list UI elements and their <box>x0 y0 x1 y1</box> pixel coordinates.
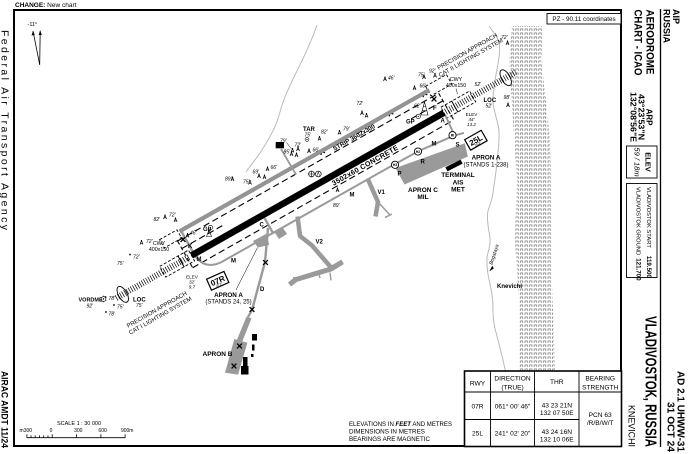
svg-text:400x150: 400x150 <box>446 83 466 89</box>
svg-text:75': 75' <box>243 180 251 186</box>
svg-text:900m: 900m <box>121 428 134 434</box>
svg-text:85': 85' <box>284 150 292 156</box>
svg-text:66': 66' <box>313 148 321 154</box>
svg-text:66': 66' <box>420 84 428 90</box>
svg-text:APRON C: APRON C <box>408 187 438 194</box>
svg-text:AIP: AIP <box>671 9 681 24</box>
svg-text:79': 79' <box>343 127 351 133</box>
svg-text:DIRECTION: DIRECTION <box>494 376 531 383</box>
svg-text:75': 75' <box>305 133 313 139</box>
svg-text:GP: GP <box>406 120 415 126</box>
svg-text:75': 75' <box>418 73 426 79</box>
svg-text:BEARINGS ARE MAGNETIC: BEARINGS ARE MAGNETIC <box>349 436 430 443</box>
svg-text:PCN 63: PCN 63 <box>589 412 612 419</box>
svg-text:APRON A: APRON A <box>214 292 243 299</box>
svg-text:M: M <box>197 257 202 263</box>
svg-text:52': 52' <box>475 82 483 88</box>
svg-text:D: D <box>260 287 265 293</box>
svg-text:62': 62' <box>414 104 422 110</box>
svg-text:DIMENSIONS IN METRES: DIMENSIONS IN METRES <box>349 428 425 435</box>
svg-text:75': 75' <box>117 305 125 311</box>
svg-text:241° 02' 20": 241° 02' 20" <box>495 430 531 438</box>
svg-text:SCALE 1 : 30 000: SCALE 1 : 30 000 <box>57 421 101 427</box>
svg-text:APRON B: APRON B <box>203 351 233 358</box>
svg-text:V2: V2 <box>316 240 324 246</box>
svg-text:0: 0 <box>50 428 53 434</box>
svg-text:59 / 18m: 59 / 18m <box>633 147 642 176</box>
svg-text:46': 46' <box>388 76 396 82</box>
svg-text:V1: V1 <box>378 190 386 196</box>
svg-text:98': 98' <box>504 95 512 101</box>
svg-text:72': 72' <box>169 213 177 219</box>
svg-text:CHART - ICAO: CHART - ICAO <box>632 10 644 76</box>
svg-text:Gp: Gp <box>203 227 212 233</box>
svg-text:ELEV: ELEV <box>644 152 653 172</box>
svg-text:ELEVATIONS IN FEET AND METRES: ELEVATIONS IN FEET AND METRES <box>349 421 452 428</box>
svg-text:C: C <box>260 223 265 229</box>
svg-text:KNEVICHI: KNEVICHI <box>626 405 637 447</box>
svg-text:CAT II LIGHTING SYSTEM: CAT II LIGHTING SYSTEM <box>438 38 504 79</box>
svg-text:-11°: -11° <box>28 22 38 28</box>
svg-text:(STANDS 1-238): (STANDS 1-238) <box>464 163 509 169</box>
svg-text:H3: H3 <box>393 163 398 167</box>
svg-text:300: 300 <box>74 428 83 434</box>
svg-text:Federal Air Transport Agency: Federal Air Transport Agency <box>0 30 11 231</box>
svg-text:52': 52' <box>486 104 494 110</box>
svg-text:H2: H2 <box>416 150 421 154</box>
svg-text:MET: MET <box>451 187 465 194</box>
svg-text:M: M <box>432 141 437 147</box>
svg-text:THR: THR <box>550 379 564 386</box>
svg-text:43 24 16N: 43 24 16N <box>542 429 573 436</box>
svg-text:PRECISION APPROACH: PRECISION APPROACH <box>437 33 499 72</box>
svg-text:82': 82' <box>154 217 162 223</box>
svg-text:72': 72' <box>357 101 365 107</box>
svg-text:78': 78' <box>109 296 117 302</box>
svg-text:75': 75' <box>136 303 144 309</box>
svg-text:BEARING: BEARING <box>585 376 615 383</box>
svg-text:AIS: AIS <box>453 180 465 187</box>
svg-text:MIL: MIL <box>417 194 428 201</box>
svg-text:(STANDS 24, 25): (STANDS 24, 25) <box>205 300 251 306</box>
svg-text:72': 72' <box>295 143 303 149</box>
svg-text:P: P <box>398 172 402 178</box>
svg-text:69': 69' <box>253 170 261 176</box>
svg-text:92': 92' <box>87 304 95 310</box>
svg-text:PZ - 90.11 coordinates: PZ - 90.11 coordinates <box>552 16 615 23</box>
svg-text:/R/B/W/T: /R/B/W/T <box>587 420 614 427</box>
svg-text:RWY: RWY <box>470 381 486 388</box>
svg-text:VLADIVOSTOK GROUND121.700: VLADIVOSTOK GROUND121.700 <box>635 187 642 281</box>
svg-text:STRENGTH: STRENGTH <box>582 384 619 391</box>
svg-text:R: R <box>421 159 426 165</box>
svg-text:061° 00' 46": 061° 00' 46" <box>495 403 531 411</box>
svg-text:m300: m300 <box>20 428 33 434</box>
svg-text:M: M <box>231 259 236 265</box>
svg-text:Knevichi: Knevichi <box>497 284 522 290</box>
svg-text:M: M <box>350 192 355 198</box>
svg-text:92': 92' <box>429 69 437 75</box>
svg-text:132 10 06E: 132 10 06E <box>540 437 574 444</box>
svg-text:89': 89' <box>225 177 233 183</box>
svg-text:25L: 25L <box>472 431 483 438</box>
svg-text:TERMINAL: TERMINAL <box>441 172 475 179</box>
svg-text:13.2: 13.2 <box>467 122 476 127</box>
svg-text:S: S <box>456 143 460 149</box>
svg-text:F: F <box>433 106 437 112</box>
svg-text:78': 78' <box>109 312 117 318</box>
svg-text:132 07 50E: 132 07 50E <box>540 410 574 417</box>
svg-text:46': 46' <box>190 231 198 237</box>
svg-text:CHANGE: New chart: CHANGE: New chart <box>15 2 77 9</box>
svg-text:79': 79' <box>280 139 288 145</box>
svg-text:Bogataya: Bogataya <box>488 244 500 266</box>
svg-text:RI: RI <box>451 134 455 138</box>
svg-text:A: A <box>441 119 446 125</box>
svg-text:400x150: 400x150 <box>149 247 169 253</box>
svg-text:K: K <box>188 244 193 250</box>
svg-text:RUSSIA: RUSSIA <box>662 9 672 44</box>
svg-text:600: 600 <box>98 428 107 434</box>
svg-text:82': 82' <box>321 130 329 136</box>
svg-text:07R: 07R <box>471 404 483 411</box>
svg-text:AERODROME: AERODROME <box>644 10 656 75</box>
svg-text:43 23 21N: 43 23 21N <box>542 402 573 409</box>
svg-text:66': 66' <box>271 165 279 171</box>
svg-text:89': 89' <box>333 203 341 209</box>
svg-text:9.7: 9.7 <box>189 285 196 290</box>
svg-text:(TRUE): (TRUE) <box>501 385 523 392</box>
svg-text:VLADIVOSTOK, RUSSIA: VLADIVOSTOK, RUSSIA <box>642 316 659 447</box>
svg-text:AIRAC AMDT 11/24: AIRAC AMDT 11/24 <box>0 371 10 449</box>
svg-text:72': 72' <box>133 255 141 261</box>
svg-text:31 OCT 24: 31 OCT 24 <box>665 402 677 452</box>
svg-text:STRIP 3602x300: STRIP 3602x300 <box>332 123 377 153</box>
svg-text:75': 75' <box>117 261 125 267</box>
svg-text:132°08'56"E: 132°08'56"E <box>629 92 638 143</box>
svg-text:APRON A: APRON A <box>472 155 501 162</box>
svg-text:VLADIVOSTOK START119.500: VLADIVOSTOK START119.500 <box>645 187 652 278</box>
